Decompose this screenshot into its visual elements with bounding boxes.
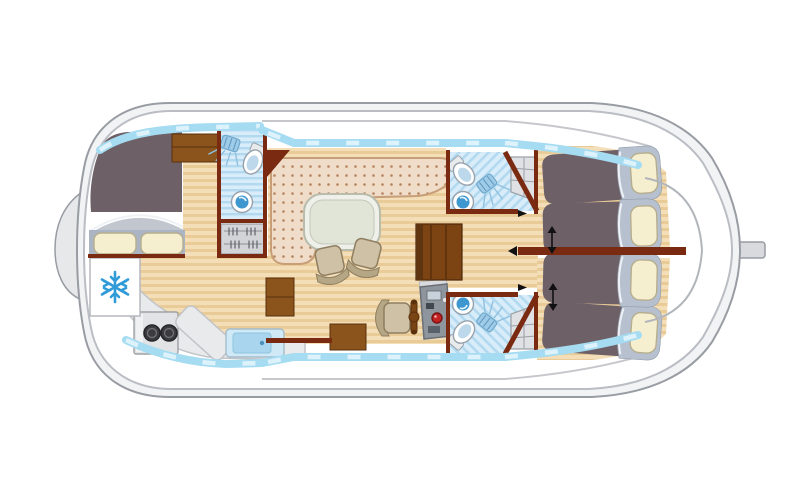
saloon-cabinet xyxy=(330,324,366,350)
pillow-right xyxy=(141,233,183,254)
side-step xyxy=(266,278,294,316)
floor-bow-passage xyxy=(183,160,219,258)
bow-cabinet xyxy=(172,134,218,162)
aft-bathroom-bottom xyxy=(446,292,537,356)
helm-seat xyxy=(376,300,411,336)
companionway-steps xyxy=(416,224,462,280)
aft-bathroom-top xyxy=(446,150,537,214)
pillow-left xyxy=(94,233,136,254)
washbasin-icon xyxy=(232,192,253,213)
deck-plan-svg: Canal boat deck plan xyxy=(0,0,810,500)
wardrobe xyxy=(221,224,265,254)
cabin-dividing-wall xyxy=(518,247,686,255)
refrigerator xyxy=(90,258,140,316)
wall xyxy=(446,150,450,214)
steering-wheel xyxy=(409,300,419,335)
aft-cabin-top xyxy=(537,145,670,256)
wall xyxy=(446,209,518,214)
boat-floor-plan: Canal boat deck plan xyxy=(0,0,810,500)
